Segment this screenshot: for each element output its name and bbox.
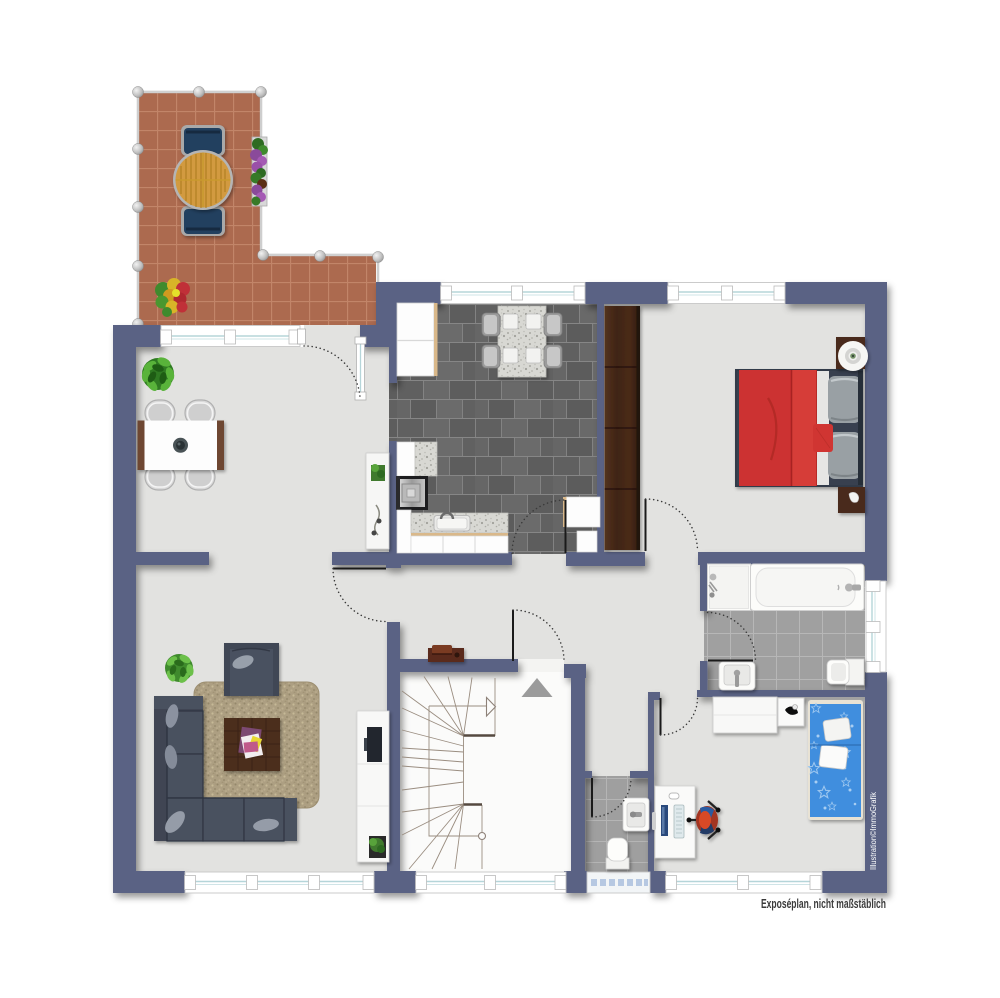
svg-text:Illustration©ImmoGrafik: Illustration©ImmoGrafik (869, 791, 878, 870)
svg-text:Exposéplan, nicht maßstäblich: Exposéplan, nicht maßstäblich (761, 897, 886, 911)
